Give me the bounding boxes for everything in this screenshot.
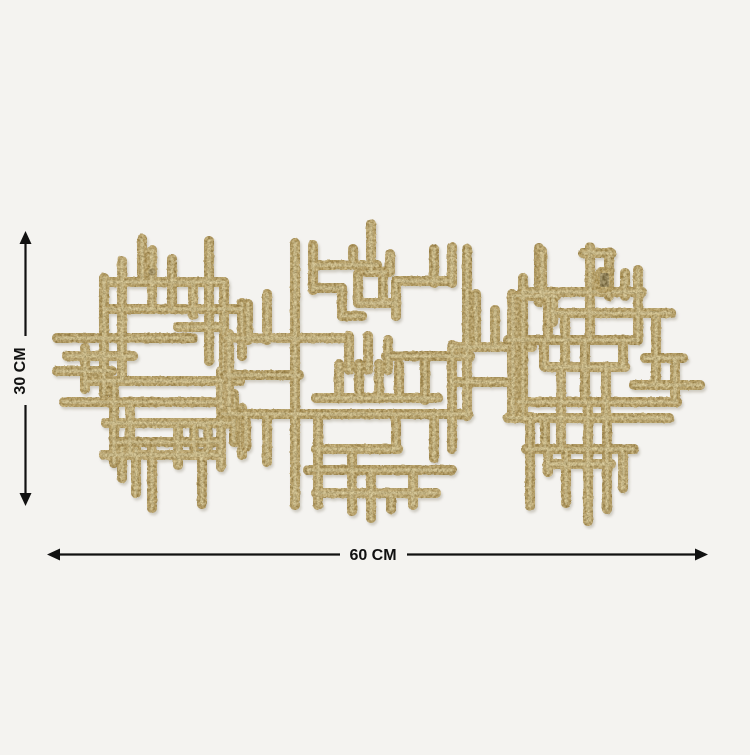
svg-text:60 CM: 60 CM (349, 547, 396, 564)
svg-text:30 CM: 30 CM (12, 347, 29, 394)
